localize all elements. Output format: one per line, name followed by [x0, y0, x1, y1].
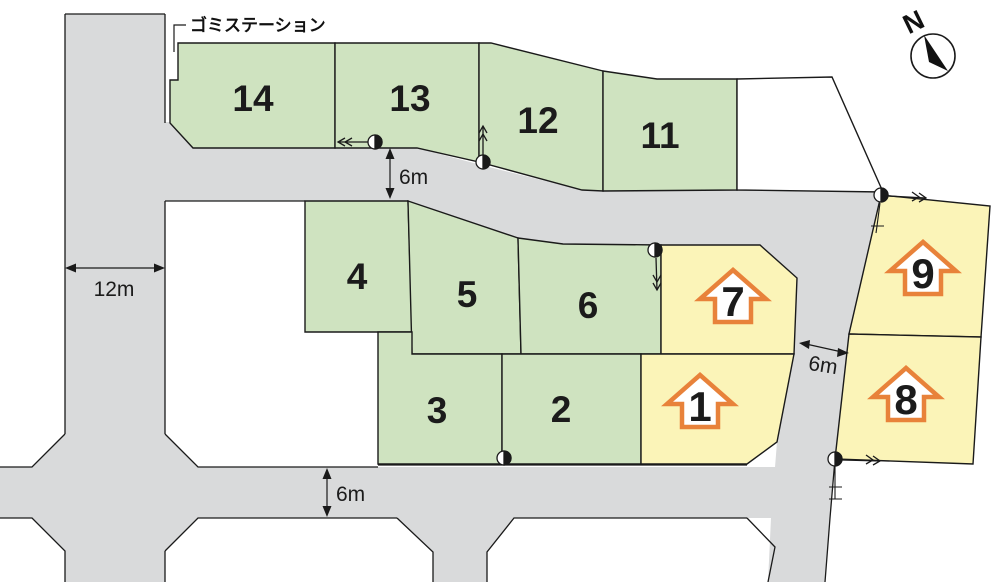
lot-14: 14 [170, 43, 335, 148]
lot-number: 5 [457, 274, 478, 315]
lot-number: 11 [640, 115, 679, 156]
lot-number: 8 [894, 376, 917, 423]
lot-number: 13 [389, 78, 430, 119]
lot-number: 14 [232, 78, 274, 119]
north-compass: N [898, 4, 955, 78]
lot-2-shape [502, 354, 641, 464]
lot-number: 1 [688, 383, 711, 430]
lot-number: 2 [551, 389, 572, 430]
lot-number: 7 [721, 278, 744, 325]
lot-number: 3 [427, 390, 448, 431]
dimension-label: 6m [336, 483, 365, 506]
lots: 14 13 12 11 4 5 6 [170, 43, 990, 464]
dimension-label: 12m [94, 278, 135, 301]
dimension-label: 6m [399, 166, 428, 189]
lot-map: 14 13 12 11 4 5 6 [0, 0, 992, 582]
lot-white-unnumbered [737, 77, 883, 192]
lot-number: 4 [347, 256, 368, 297]
survey-marker [497, 451, 511, 465]
lot-7: 7 [661, 245, 797, 354]
lot-8: 8 [835, 334, 981, 464]
lot-white-shape [737, 77, 883, 192]
road-bottom-6m [0, 467, 830, 518]
lot-1: 1 [641, 354, 794, 464]
garbage-station-label: ゴミステーション [190, 15, 326, 35]
lot-2: 2 [502, 354, 641, 464]
road-stub-bottom [397, 518, 514, 582]
lot-4: 4 [305, 201, 412, 332]
lot-12: 12 [479, 43, 603, 191]
lot-6: 6 [518, 238, 661, 354]
north-label: N [898, 4, 929, 40]
lot-number: 12 [517, 100, 558, 141]
lot-13: 13 [335, 43, 479, 162]
dimension-label: 6m [807, 352, 839, 379]
lot-11: 11 [603, 71, 737, 191]
lot-number: 6 [578, 285, 599, 326]
lot-number: 9 [911, 250, 934, 297]
